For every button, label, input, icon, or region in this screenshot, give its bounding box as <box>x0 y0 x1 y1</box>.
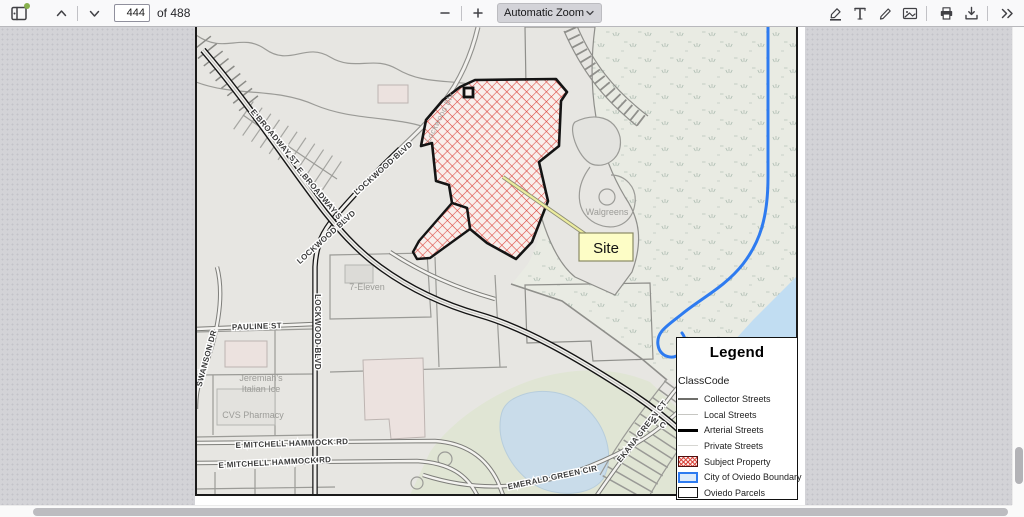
text-icon <box>853 6 867 21</box>
svg-text:Walgreens: Walgreens <box>586 207 629 217</box>
highlight-button[interactable] <box>824 2 846 24</box>
subject-property-swatch <box>678 456 698 467</box>
collector-street-swatch <box>678 398 698 400</box>
save-button[interactable] <box>960 2 982 24</box>
arterial-street-swatch <box>678 429 698 432</box>
legend-item-parcels: Oviedo Parcels <box>677 485 797 501</box>
legend-subtitle: ClassCode <box>678 375 797 387</box>
scrollbar-corner <box>1012 505 1024 517</box>
svg-text:CVS Pharmacy: CVS Pharmacy <box>222 410 284 420</box>
toggle-sidebar-button[interactable] <box>8 2 30 24</box>
double-chevron-right-icon <box>1000 7 1015 20</box>
site-marker-square <box>464 88 473 97</box>
pdf-viewer-canvas[interactable]: E BROADWAY ST E BROADWAY ST LOCKWOOD BLV… <box>0 27 1012 505</box>
zoom-in-button[interactable] <box>467 2 489 24</box>
svg-text:Site: Site <box>593 240 619 257</box>
toolbar-left-group: of 488 <box>8 0 190 26</box>
divider <box>461 6 462 21</box>
chevron-down-icon <box>88 7 101 20</box>
legend-title: Legend <box>677 344 797 361</box>
svg-text:7-Eleven: 7-Eleven <box>349 282 385 292</box>
svg-text:Italian Ice: Italian Ice <box>242 384 281 394</box>
legend-item-private: Private Streets <box>677 438 797 454</box>
text-annotation-button[interactable] <box>849 2 871 24</box>
highlighter-icon <box>828 6 843 21</box>
sidebar-notification-dot <box>24 3 30 9</box>
pdf-toolbar: of 488 Automatic Zoom <box>0 0 1024 27</box>
divider <box>77 6 78 21</box>
private-street-swatch <box>678 445 698 446</box>
chevron-up-icon <box>55 7 68 20</box>
zoom-level-value: Automatic Zoom <box>504 7 584 19</box>
page-number-input[interactable] <box>114 4 150 22</box>
zoom-level-select[interactable]: Automatic Zoom <box>497 3 602 23</box>
next-page-button[interactable] <box>83 2 105 24</box>
printer-icon <box>939 6 954 21</box>
chevron-down-icon <box>585 8 595 18</box>
download-icon <box>964 6 979 21</box>
add-image-button[interactable] <box>899 2 921 24</box>
legend-item-subject: Subject Property <box>677 454 797 470</box>
svg-text:PAULINE ST: PAULINE ST <box>232 321 282 332</box>
svg-text:LOCKWOOD BLVD: LOCKWOOD BLVD <box>313 294 322 370</box>
local-street-swatch <box>678 414 698 415</box>
more-tools-button[interactable] <box>996 2 1018 24</box>
oviedo-parcels-swatch <box>678 487 698 498</box>
plus-icon <box>472 7 484 19</box>
minus-icon <box>439 7 451 19</box>
legend-item-arterial: Arterial Streets <box>677 422 797 438</box>
horizontal-scrollbar-thumb[interactable] <box>33 508 1008 516</box>
toolbar-zoom-group: Automatic Zoom <box>434 0 602 26</box>
divider <box>926 6 927 21</box>
legend-item-local: Local Streets <box>677 407 797 423</box>
vertical-scrollbar[interactable] <box>1012 27 1024 505</box>
vertical-scrollbar-thumb[interactable] <box>1015 447 1023 484</box>
pdf-page: E BROADWAY ST E BROADWAY ST LOCKWOOD BLV… <box>195 27 805 505</box>
print-button[interactable] <box>935 2 957 24</box>
pencil-icon <box>878 6 893 21</box>
legend-item-collector: Collector Streets <box>677 391 797 407</box>
horizontal-scrollbar[interactable] <box>0 505 1012 517</box>
image-icon <box>902 6 918 21</box>
divider <box>987 6 988 21</box>
zoom-out-button[interactable] <box>434 2 456 24</box>
toolbar-right-group <box>821 0 1018 26</box>
draw-button[interactable] <box>874 2 896 24</box>
previous-page-button[interactable] <box>50 2 72 24</box>
map-legend: Legend ClassCode Collector Streets Local… <box>676 337 798 500</box>
page-count-label: of 488 <box>157 6 190 20</box>
svg-text:Jeremiah's: Jeremiah's <box>239 373 283 383</box>
legend-item-city-boundary: City of Oviedo Boundary <box>677 469 797 485</box>
city-boundary-swatch <box>678 472 698 483</box>
